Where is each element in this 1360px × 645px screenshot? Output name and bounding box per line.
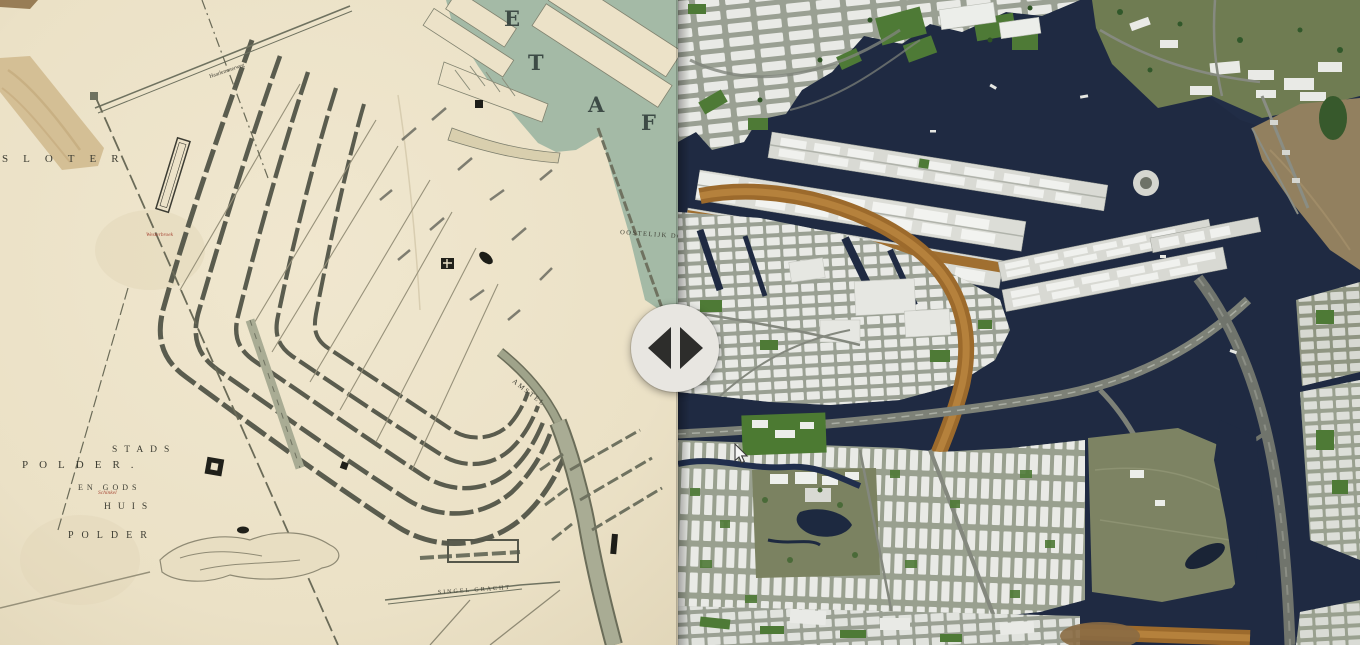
city-park xyxy=(752,468,880,578)
historical-map-pane: SLOTER POLDER. STADS EN GODS HUIS POLDER… xyxy=(0,0,678,645)
modern-map-pane xyxy=(678,0,1360,645)
label-ij-letter-t: T xyxy=(528,50,544,75)
mouse-cursor-icon xyxy=(733,443,753,465)
label-ij-letter-e: E xyxy=(504,6,520,31)
label-huis: HUIS xyxy=(104,502,154,512)
slider-arrow-right-icon xyxy=(680,327,703,369)
label-ij-letter-a: A xyxy=(587,92,605,117)
comparison-slider-handle[interactable] xyxy=(631,304,719,392)
label-sloter: SLOTER xyxy=(2,153,134,165)
slider-arrow-left-icon xyxy=(648,327,671,369)
round-pier-structure xyxy=(1133,170,1159,196)
label-stads: STADS xyxy=(112,445,176,455)
label-ij-letter-f: F xyxy=(641,110,656,135)
label-polder-s: POLDER xyxy=(68,530,155,541)
map-comparison-view: SLOTER POLDER. STADS EN GODS HUIS POLDER… xyxy=(0,0,1360,645)
label-red-note-2: Schinkel xyxy=(98,490,117,496)
label-polder-nw: POLDER. xyxy=(22,459,145,471)
label-red-note-1: Westerbroek xyxy=(146,232,174,238)
